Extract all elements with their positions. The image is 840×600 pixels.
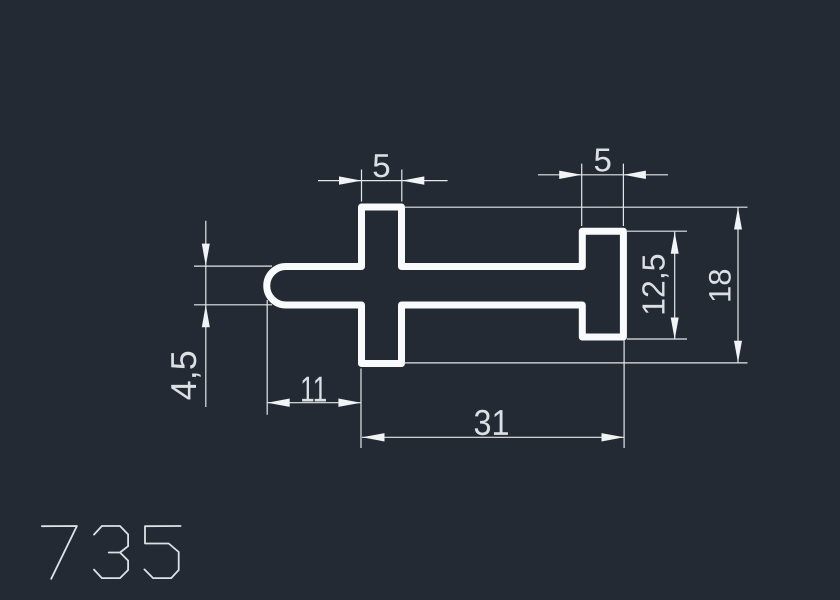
svg-text:5: 5 (372, 147, 390, 184)
svg-text:18: 18 (703, 269, 738, 303)
svg-text:12,5: 12,5 (636, 253, 672, 315)
svg-text:11: 11 (300, 368, 327, 409)
svg-text:5: 5 (594, 141, 612, 178)
svg-text:31: 31 (473, 402, 509, 443)
svg-text:4,5: 4,5 (163, 350, 204, 400)
